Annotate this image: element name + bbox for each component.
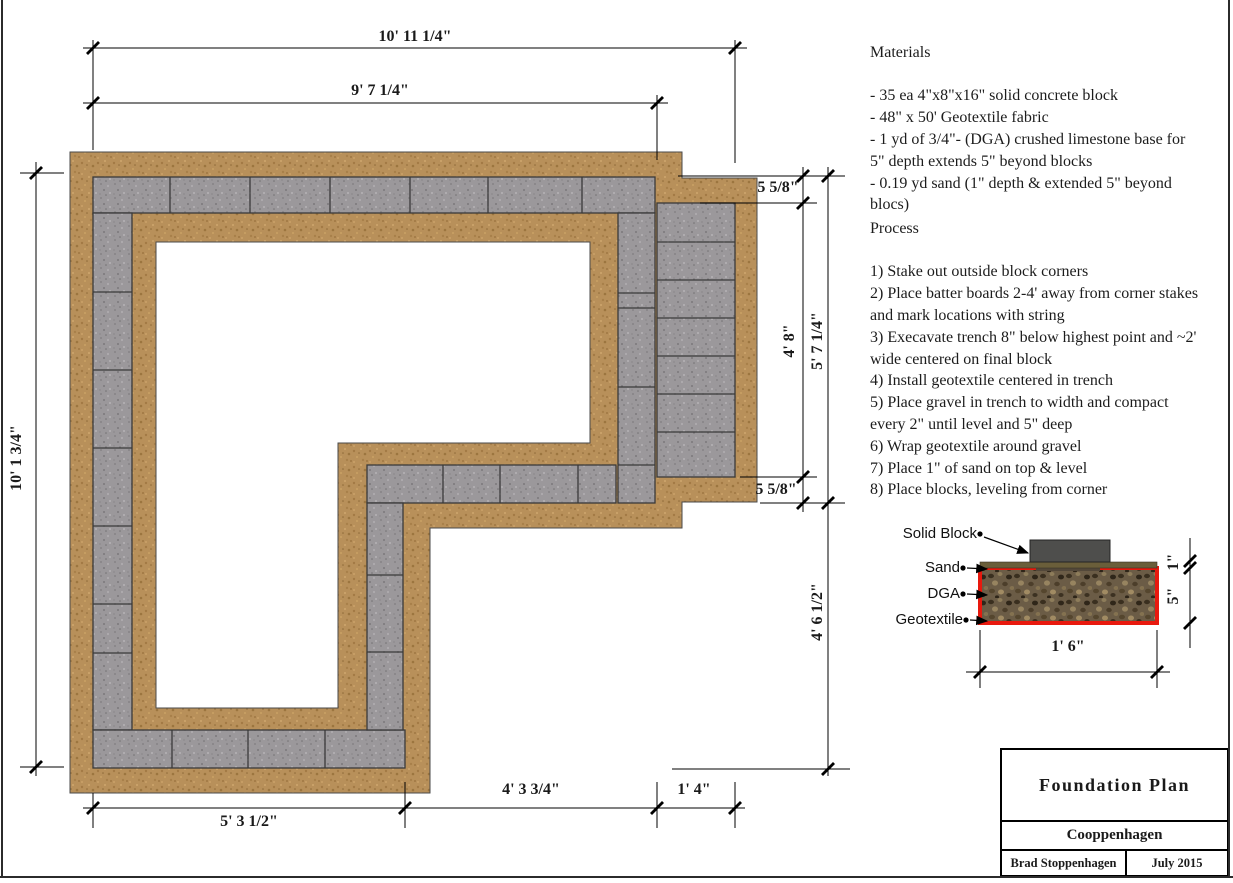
section-solid-block [1030, 540, 1110, 562]
dim-left-overall: 10' 1 3/4" [8, 425, 26, 491]
section-dga-gravel [980, 568, 1157, 623]
title-block: Foundation Plan Cooppenhagen Brad Stoppe… [1000, 748, 1229, 877]
process-notes: Process 1) Stake out outside block corne… [870, 196, 1200, 523]
dim-section-gravel-depth: 5" [1165, 588, 1183, 605]
section-sand-layer [980, 562, 1157, 568]
project-name: Cooppenhagen [1002, 820, 1227, 849]
dim-right-wing-depth: 5' 7 1/4" [809, 312, 827, 370]
sheet-border-bottom [0, 876, 1233, 878]
title-block-footer: Brad Stoppenhagen July 2015 [1002, 849, 1227, 875]
dim-top-overall: 10' 11 1/4" [379, 28, 452, 46]
dim-section-sand-depth: 1" [1165, 554, 1183, 571]
process-title: Process [870, 218, 1200, 240]
section-label-sand: Sand [840, 558, 960, 578]
section-label-solid-block: Solid Block [857, 524, 977, 544]
sheet-border-right [1228, 0, 1230, 878]
materials-title: Materials [870, 42, 1200, 64]
section-label-geotextile: Geotextile [843, 610, 963, 630]
drawing-sheet: 10' 11 1/4" 9' 7 1/4" 10' 1 3/4" 5 5/8" … [0, 0, 1233, 883]
section-label-dga: DGA [840, 584, 960, 604]
section-detail [960, 531, 1157, 623]
dim-right-block-run: 4' 8" [781, 324, 799, 357]
dim-bottom-left-wing: 5' 3 1/2" [220, 813, 278, 831]
dim-right-bottom-offset: 5 5/8" [755, 481, 796, 499]
author-name: Brad Stoppenhagen [1002, 851, 1127, 875]
dim-top-to-step: 9' 7 1/4" [351, 82, 409, 100]
dim-right-lower-clear: 4' 6 1/2" [809, 583, 827, 641]
process-steps: 1) Stake out outside block corners 2) Pl… [870, 261, 1200, 501]
dim-section-width: 1' 6" [1051, 638, 1084, 656]
sheet-border-left [1, 0, 3, 878]
dim-right-top-offset: 5 5/8" [757, 179, 798, 197]
dim-bottom-clear: 4' 3 3/4" [502, 781, 560, 799]
dim-bottom-block-width: 1' 4" [677, 781, 710, 799]
drawing-date: July 2015 [1127, 851, 1227, 875]
drawing-title: Foundation Plan [1002, 750, 1227, 820]
